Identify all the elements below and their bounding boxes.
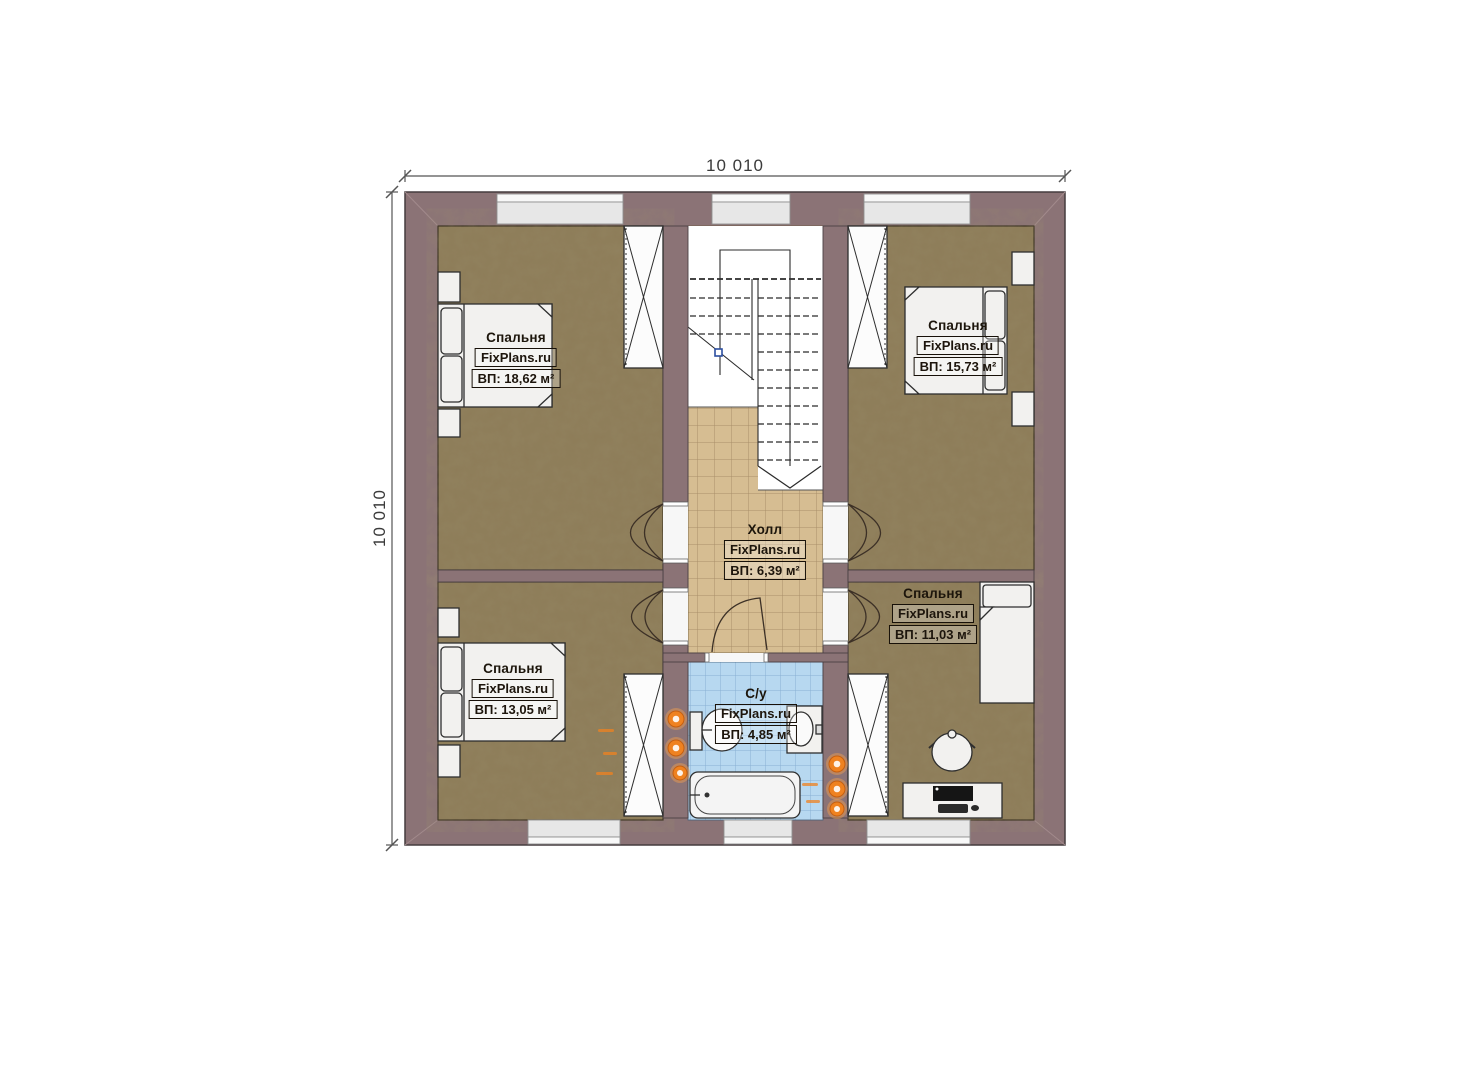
room-name: С/у — [715, 686, 797, 701]
wall-hall-left-lower — [663, 645, 688, 818]
window-bottom-left — [528, 820, 620, 844]
room-name: Холл — [724, 522, 806, 537]
window-bottom-right — [867, 820, 970, 844]
room-label-bedroom-top-left: Спальня FixPlans.ru ВП: 18,62 м² — [472, 330, 561, 388]
wall-hall-right-pier — [823, 563, 848, 588]
room-label-bedroom-bottom-left: Спальня FixPlans.ru ВП: 13,05 м² — [469, 661, 558, 719]
window-top-middle — [712, 194, 790, 224]
wall-hall-right-upper — [823, 226, 848, 502]
bathtub — [690, 772, 800, 818]
watermark-badge: FixPlans.ru — [715, 704, 797, 723]
watermark-badge: FixPlans.ru — [475, 348, 557, 367]
room-label-bedroom-top-right: Спальня FixPlans.ru ВП: 15,73 м² — [914, 318, 1003, 376]
room-name: Спальня — [889, 586, 977, 601]
window-top-right — [864, 194, 970, 224]
wall-bathroom-top-b — [768, 653, 848, 662]
wardrobe-top-right — [848, 226, 887, 368]
room-area-badge: ВП: 15,73 м² — [914, 357, 1003, 376]
room-area-badge: ВП: 18,62 м² — [472, 369, 561, 388]
door-opening-top-left — [663, 502, 688, 563]
door-opening-bottom-left — [663, 588, 688, 645]
wall-divider-left — [438, 570, 663, 582]
room-area-badge: ВП: 6,39 м² — [724, 561, 806, 580]
heating-valves-right — [826, 753, 848, 819]
room-name: Спальня — [472, 330, 561, 345]
room-label-bedroom-mid-right: Спальня FixPlans.ru ВП: 11,03 м² — [889, 586, 977, 644]
wall-hall-left-pier — [663, 563, 688, 588]
dimension-left-value: 10 010 — [370, 489, 390, 547]
wardrobe-bottom-left — [624, 674, 663, 816]
wall-bathroom-top-a — [663, 653, 705, 662]
floor-plan-page: 10 010 10 010 Спальня FixPlans.ru ВП: 18… — [0, 0, 1473, 1080]
room-area-badge: ВП: 11,03 м² — [889, 625, 977, 644]
dimension-top-value: 10 010 — [706, 156, 764, 176]
wall-hall-left-upper — [663, 226, 688, 502]
watermark-badge: FixPlans.ru — [917, 336, 999, 355]
door-opening-bottom-right — [823, 588, 848, 645]
room-area-badge: ВП: 13,05 м² — [469, 700, 558, 719]
window-top-left — [497, 194, 623, 224]
room-label-hall: Холл FixPlans.ru ВП: 6,39 м² — [724, 522, 806, 580]
door-opening-bathroom — [705, 653, 768, 662]
bed-single-bottom-right — [980, 582, 1034, 703]
door-opening-top-right — [823, 502, 848, 563]
window-bottom-middle — [724, 820, 792, 844]
wardrobe-top-left — [624, 226, 663, 368]
room-area-badge: ВП: 4,85 м² — [715, 725, 797, 744]
room-name: Спальня — [914, 318, 1003, 333]
wall-divider-right — [848, 570, 1034, 582]
watermark-badge: FixPlans.ru — [472, 679, 554, 698]
room-label-bathroom: С/у FixPlans.ru ВП: 4,85 м² — [715, 686, 797, 744]
desk — [903, 783, 1002, 818]
room-name: Спальня — [469, 661, 558, 676]
watermark-badge: FixPlans.ru — [724, 540, 806, 559]
watermark-badge: FixPlans.ru — [892, 604, 974, 623]
wardrobe-bottom-right — [848, 674, 888, 816]
